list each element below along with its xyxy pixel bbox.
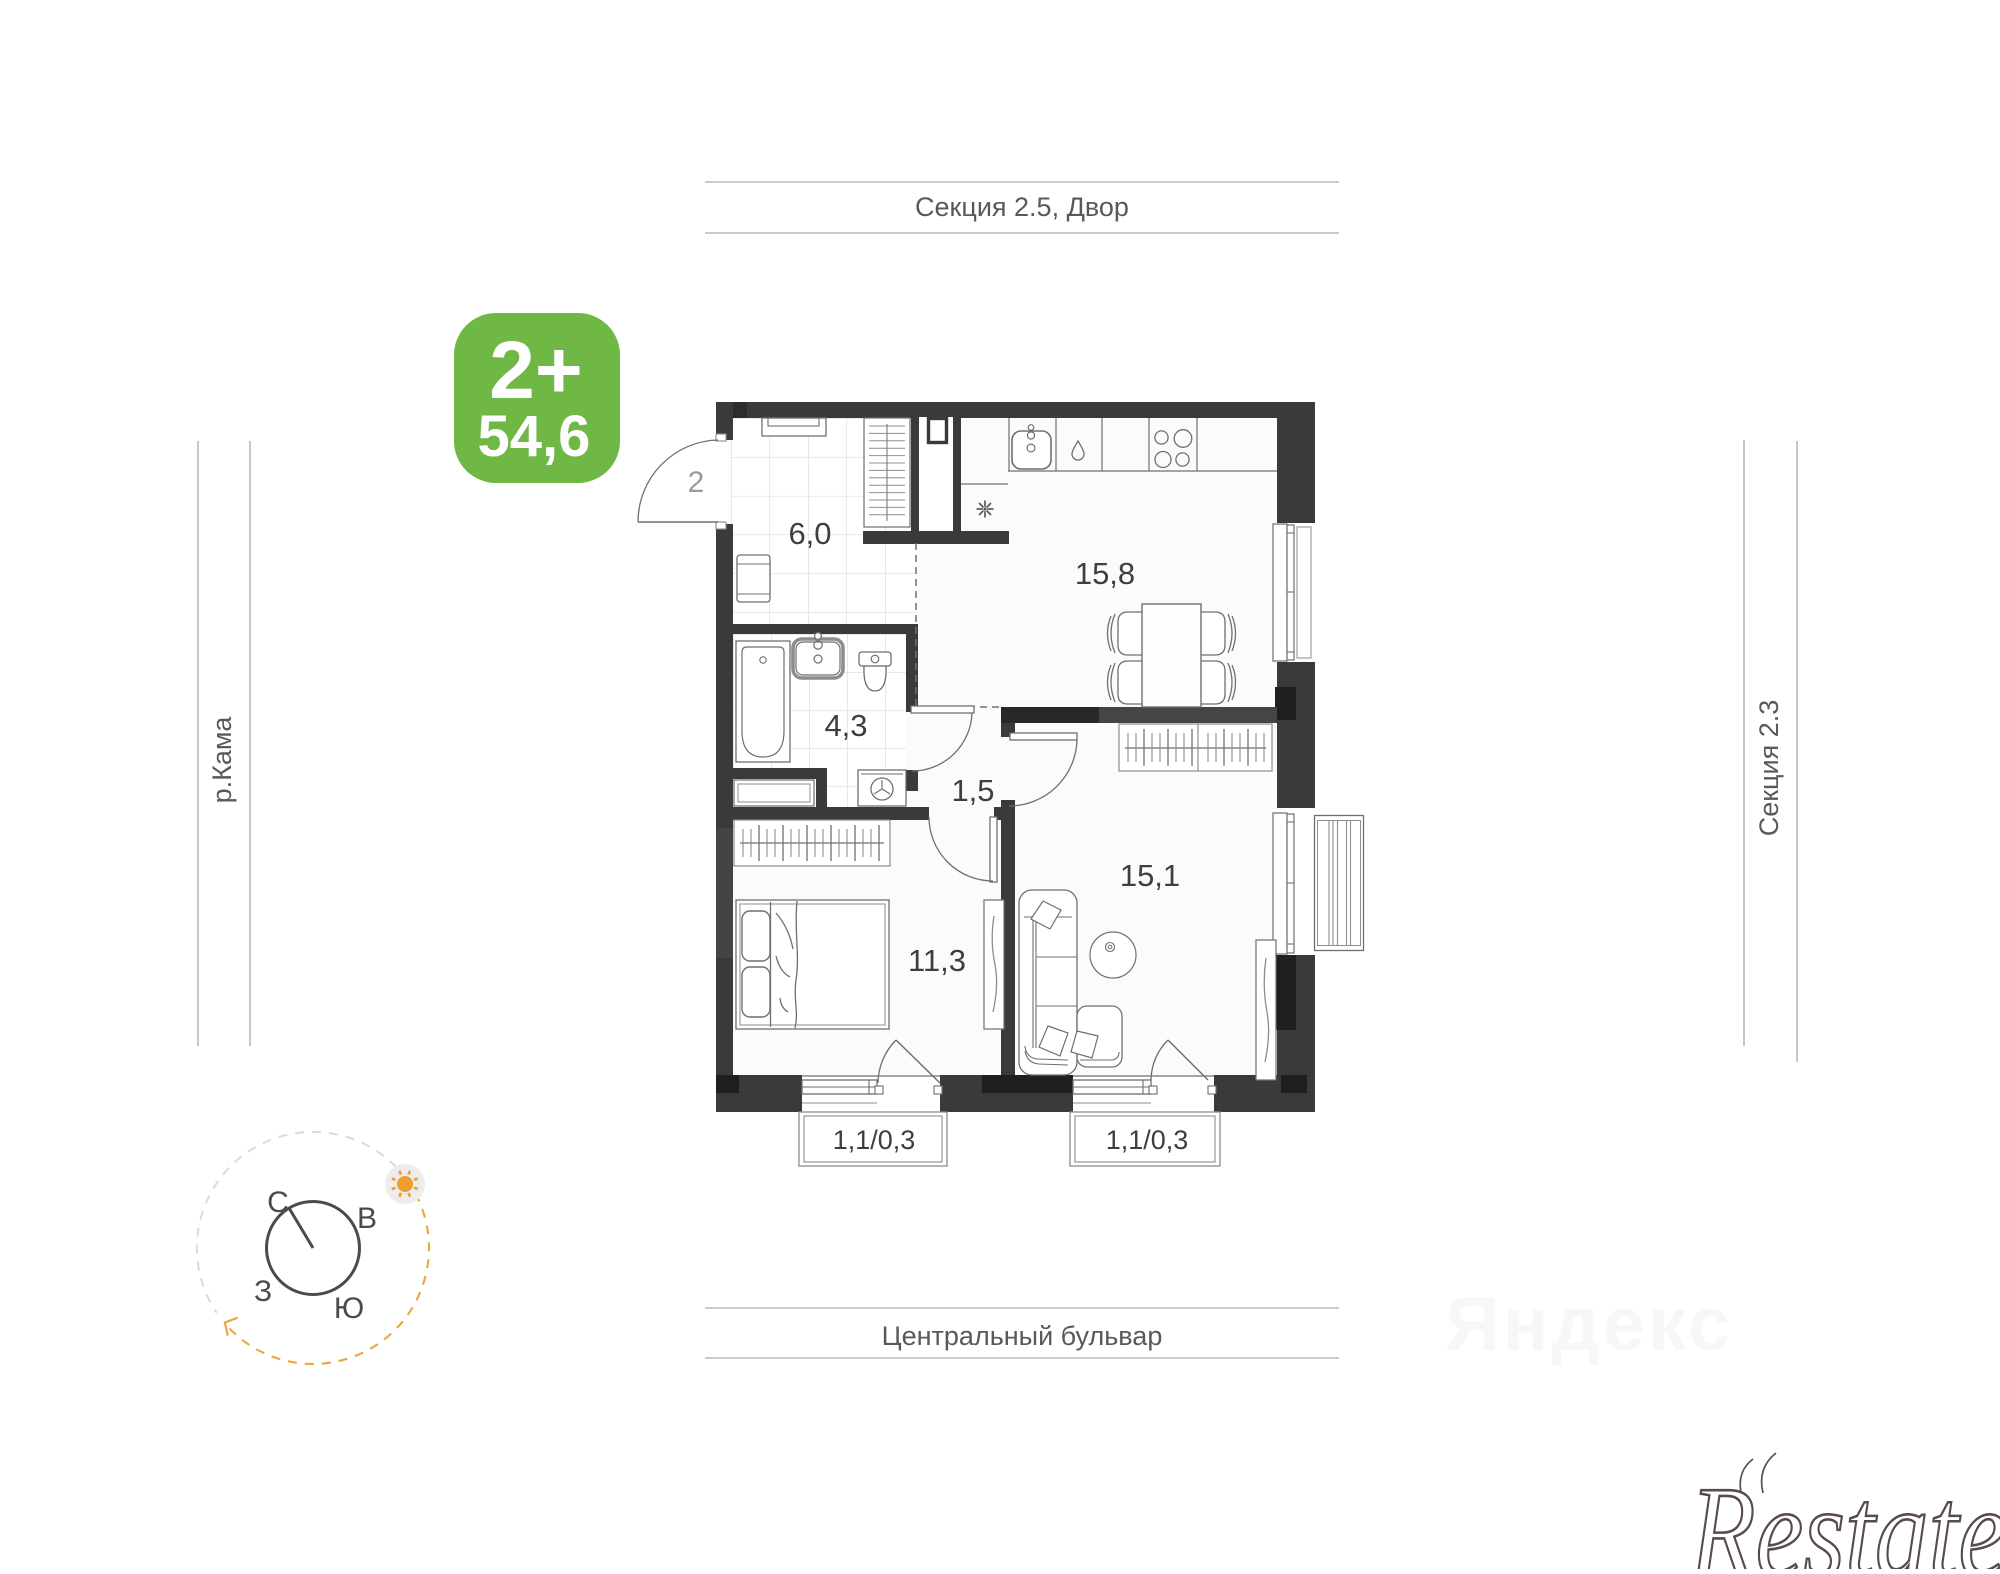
svg-text:Ю: Ю <box>334 1292 364 1325</box>
svg-text:4,3: 4,3 <box>824 708 867 743</box>
svg-text:З: З <box>254 1275 272 1308</box>
svg-text:Restate: Restate <box>1689 1459 2000 1569</box>
svg-text:Яндекс: Яндекс <box>1445 1282 1733 1367</box>
svg-text:11,3: 11,3 <box>908 943 966 978</box>
svg-text:С: С <box>267 1186 289 1219</box>
svg-text:2: 2 <box>688 466 705 499</box>
svg-text:1,1/0,3: 1,1/0,3 <box>1106 1125 1189 1155</box>
svg-text:В: В <box>357 1202 377 1235</box>
svg-text:1,5: 1,5 <box>951 773 994 808</box>
svg-text:15,1: 15,1 <box>1120 858 1180 893</box>
svg-text:15,8: 15,8 <box>1075 556 1135 591</box>
svg-text:Секция 2.5, Двор: Секция 2.5, Двор <box>915 192 1129 222</box>
svg-text:6,0: 6,0 <box>788 516 831 551</box>
svg-text:Секция 2.3: Секция 2.3 <box>1754 700 1784 837</box>
svg-text:1,1/0,3: 1,1/0,3 <box>833 1125 916 1155</box>
svg-text:2+: 2+ <box>489 325 583 416</box>
svg-text:54,6: 54,6 <box>478 404 591 469</box>
svg-text:Центральный бульвар: Центральный бульвар <box>882 1321 1163 1351</box>
svg-text:р.Кама: р.Кама <box>207 716 237 804</box>
